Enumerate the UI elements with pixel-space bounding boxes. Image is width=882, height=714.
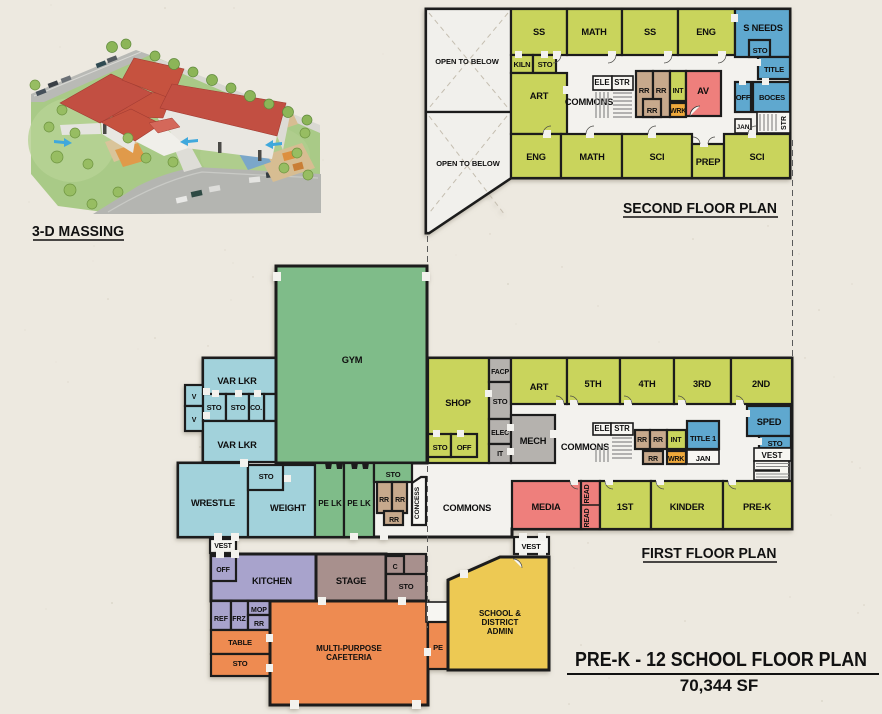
svg-text:RR: RR — [639, 86, 650, 95]
svg-text:ELE: ELE — [594, 424, 609, 433]
svg-text:STO: STO — [399, 582, 414, 591]
svg-text:5TH: 5TH — [585, 379, 602, 389]
svg-text:PE LK: PE LK — [347, 499, 371, 508]
svg-text:ART: ART — [530, 382, 549, 392]
svg-text:PRE-K: PRE-K — [743, 502, 771, 512]
svg-text:READ: READ — [584, 508, 591, 527]
svg-text:PE: PE — [433, 643, 443, 652]
svg-text:MEDIA: MEDIA — [532, 502, 561, 512]
svg-text:STO: STO — [259, 472, 274, 481]
svg-text:V: V — [192, 417, 197, 424]
svg-text:V: V — [192, 394, 197, 401]
svg-text:SCI: SCI — [750, 152, 765, 162]
svg-text:MOP: MOP — [251, 607, 267, 614]
svg-text:STO: STO — [433, 443, 448, 452]
svg-text:VEST: VEST — [521, 542, 541, 551]
svg-text:WRK: WRK — [668, 456, 684, 463]
svg-text:COMMONS: COMMONS — [561, 442, 609, 452]
svg-text:KITCHEN: KITCHEN — [252, 576, 292, 586]
svg-text:ELEC: ELEC — [491, 430, 509, 437]
svg-text:RR: RR — [379, 497, 389, 504]
svg-text:PE LK: PE LK — [318, 499, 342, 508]
svg-text:FACP: FACP — [491, 369, 509, 376]
svg-text:PRE-K - 12 SCHOOL FLOOR PLAN: PRE-K - 12 SCHOOL FLOOR PLAN — [575, 649, 867, 671]
svg-text:STO: STO — [768, 439, 783, 448]
svg-text:STO: STO — [493, 397, 508, 406]
svg-text:RR: RR — [389, 517, 399, 524]
svg-text:ADMIN: ADMIN — [487, 627, 513, 636]
svg-text:C: C — [393, 564, 398, 571]
svg-text:STO: STO — [231, 403, 246, 412]
svg-text:JAN: JAN — [736, 124, 749, 131]
svg-text:VAR LKR: VAR LKR — [217, 440, 257, 450]
svg-text:SS: SS — [533, 27, 545, 37]
svg-text:STR: STR — [781, 116, 788, 130]
svg-text:ART: ART — [530, 91, 549, 101]
svg-text:RR: RR — [637, 437, 647, 444]
svg-text:SCHOOL &: SCHOOL & — [479, 609, 521, 618]
svg-text:SECOND FLOOR PLAN: SECOND FLOOR PLAN — [623, 200, 777, 217]
svg-text:MECH: MECH — [520, 436, 547, 446]
svg-text:FRZ: FRZ — [232, 616, 246, 623]
svg-text:KILN: KILN — [514, 60, 531, 69]
svg-text:TITLE 1: TITLE 1 — [690, 434, 717, 443]
svg-text:COMMONS: COMMONS — [443, 503, 491, 513]
svg-text:BOCES: BOCES — [759, 93, 785, 102]
svg-text:S NEEDS: S NEEDS — [743, 23, 782, 33]
svg-text:OPEN TO BELOW: OPEN TO BELOW — [435, 57, 500, 66]
svg-text:READ: READ — [584, 484, 591, 503]
svg-text:3RD: 3RD — [693, 379, 711, 389]
svg-text:COMMONS: COMMONS — [565, 97, 613, 107]
svg-text:SPED: SPED — [757, 417, 782, 427]
svg-text:SS: SS — [644, 27, 656, 37]
svg-text:MATH: MATH — [581, 27, 607, 37]
svg-text:CONCESS: CONCESS — [414, 486, 421, 519]
svg-text:VEST: VEST — [214, 543, 232, 550]
svg-text:SCI: SCI — [650, 152, 665, 162]
svg-text:STO: STO — [207, 403, 222, 412]
svg-text:DISTRICT: DISTRICT — [482, 618, 519, 627]
svg-text:STR: STR — [614, 424, 630, 433]
svg-text:AV: AV — [697, 86, 710, 96]
svg-text:RR: RR — [647, 106, 658, 115]
svg-text:CAFETERIA: CAFETERIA — [326, 653, 372, 662]
svg-text:70,344 SF: 70,344 SF — [680, 676, 758, 695]
svg-text:2ND: 2ND — [752, 379, 770, 389]
svg-text:OFF: OFF — [216, 567, 230, 574]
svg-text:SHOP: SHOP — [445, 398, 471, 408]
svg-text:STO: STO — [538, 60, 553, 69]
svg-text:RR: RR — [254, 621, 264, 628]
svg-text:KINDER: KINDER — [670, 502, 705, 512]
svg-text:STO: STO — [386, 470, 401, 479]
svg-text:RR: RR — [648, 456, 658, 463]
svg-text:MATH: MATH — [579, 152, 605, 162]
svg-text:3-D MASSING: 3-D MASSING — [32, 224, 124, 240]
svg-text:JAN: JAN — [696, 454, 711, 463]
svg-text:4TH: 4TH — [639, 379, 656, 389]
svg-text:RR: RR — [656, 86, 667, 95]
svg-text:INT: INT — [671, 437, 683, 444]
svg-text:VEST: VEST — [762, 451, 783, 460]
svg-text:CO.: CO. — [250, 405, 262, 412]
svg-text:WRESTLE: WRESTLE — [191, 498, 235, 508]
svg-text:PREP: PREP — [696, 157, 721, 167]
svg-text:MULTI-PURPOSE: MULTI-PURPOSE — [316, 644, 382, 653]
svg-text:GYM: GYM — [342, 355, 363, 365]
svg-text:OFF: OFF — [457, 443, 472, 452]
svg-text:ENG: ENG — [526, 152, 546, 162]
svg-text:ELE: ELE — [594, 78, 609, 87]
svg-text:RR: RR — [653, 437, 663, 444]
svg-text:TITLE: TITLE — [764, 65, 784, 74]
svg-text:IT: IT — [497, 451, 504, 458]
svg-text:STAGE: STAGE — [336, 576, 366, 586]
svg-text:REF: REF — [214, 616, 229, 623]
svg-text:STO: STO — [233, 659, 248, 668]
svg-text:FIRST FLOOR PLAN: FIRST FLOOR PLAN — [642, 545, 777, 562]
svg-text:OPEN TO BELOW: OPEN TO BELOW — [436, 159, 501, 168]
svg-text:RR: RR — [395, 497, 405, 504]
svg-text:1ST: 1ST — [617, 502, 634, 512]
svg-text:OFF: OFF — [736, 93, 751, 102]
svg-text:WEIGHT: WEIGHT — [270, 503, 307, 513]
svg-text:ENG: ENG — [696, 27, 716, 37]
svg-text:INT: INT — [673, 88, 685, 95]
svg-text:STR: STR — [614, 78, 630, 87]
svg-text:VAR LKR: VAR LKR — [217, 376, 257, 386]
svg-text:TABLE: TABLE — [228, 638, 252, 647]
svg-text:WRK: WRK — [670, 108, 686, 115]
svg-text:STO: STO — [753, 46, 768, 55]
